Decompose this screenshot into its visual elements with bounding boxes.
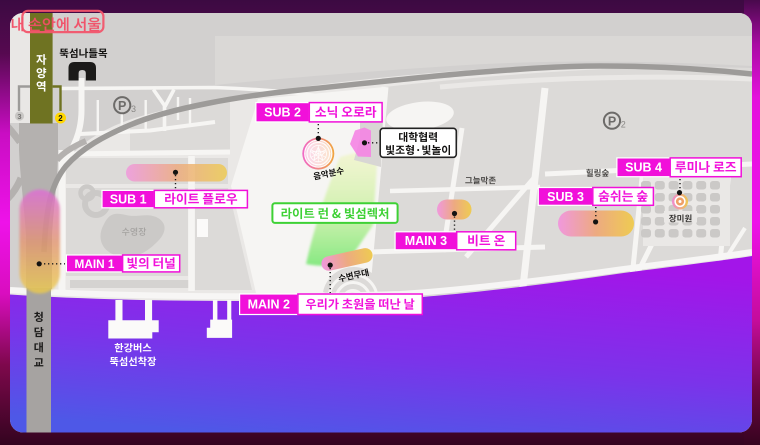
svg-text:SUB 3: SUB 3 — [547, 190, 584, 204]
svg-text:3: 3 — [17, 112, 21, 121]
svg-text:P: P — [608, 115, 616, 129]
svg-text:MAIN 1: MAIN 1 — [75, 257, 115, 271]
svg-text:P: P — [118, 99, 126, 113]
svg-text:SUB 4: SUB 4 — [625, 161, 662, 175]
svg-text:2: 2 — [621, 120, 626, 130]
svg-text:SUB 2: SUB 2 — [264, 106, 301, 120]
svg-text:3: 3 — [131, 104, 136, 114]
svg-text:MAIN 2: MAIN 2 — [248, 298, 290, 312]
svg-text:SUB 1: SUB 1 — [110, 193, 147, 207]
svg-text:MAIN 3: MAIN 3 — [405, 234, 447, 248]
svg-text:2: 2 — [58, 114, 63, 123]
